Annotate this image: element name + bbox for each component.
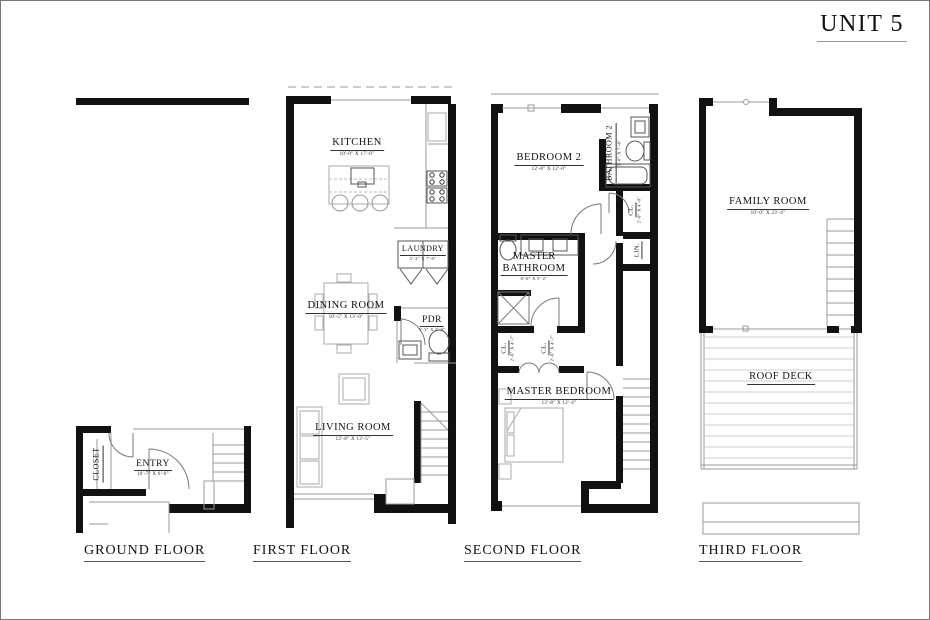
stool — [352, 195, 368, 211]
kitchen-dims: 10'-0" X 17'-0" — [330, 152, 384, 158]
third-thin-lines — [701, 102, 859, 534]
linen-closet-label: LIN. — [633, 241, 642, 259]
kitchen-label: KITCHEN 10'-0" X 17'-0" — [330, 137, 384, 157]
pdr-label: PDR 5'-3" X 5'-0" — [419, 315, 446, 333]
kitchen-name: KITCHEN — [330, 137, 384, 151]
bathroom2-name: BATHROOM 2 — [606, 123, 617, 183]
master-bathroom-name-line1: MASTER — [501, 251, 568, 263]
closet-right-label: CL. 2'-0" X 4'-7" — [540, 335, 555, 362]
living-room-name: LIVING ROOM — [313, 422, 393, 436]
family-room-name: FAMILY ROOM — [727, 196, 809, 210]
pdr-dims: 5'-3" X 5'-0" — [419, 328, 446, 333]
living-room-label: LIVING ROOM 12'-8" X 13'-5" — [313, 422, 393, 442]
family-room-dims: 10'-0" X 23'-4" — [727, 211, 809, 217]
bathroom2-dims: 5'-0" X 7'-8" — [617, 123, 622, 183]
master-bathroom-dims: 8'-0" X 9'-2" — [501, 277, 568, 282]
closet-left-label: CL. 2'-0" X 4'-7" — [500, 335, 515, 362]
closet-left-dims: 2'-0" X 4'-7" — [511, 335, 516, 362]
floor-plan-sheet: UNIT 5 CLOSET ENTRY 10'-7" X 6'-0" KITCH… — [0, 0, 930, 620]
entry-dims: 10'-7" X 6'-0" — [134, 472, 172, 478]
closet-label: CLOSET — [93, 445, 104, 482]
pdr-name: PDR — [420, 315, 444, 327]
family-room-label: FAMILY ROOM 10'-0" X 23'-4" — [727, 196, 809, 216]
bedroom2-name: BEDROOM 2 — [515, 152, 584, 166]
living-room-dims: 12'-8" X 13'-5" — [313, 437, 393, 443]
pdr-toilet — [429, 330, 449, 354]
third-floor-geometry — [699, 98, 862, 534]
deck-boards — [705, 337, 853, 458]
laundry-dims: 5'-2" X 7'-0" — [400, 257, 446, 262]
first-floor-label: FIRST FLOOR — [253, 543, 351, 562]
bathroom2-toilet — [626, 141, 644, 161]
dining-room-label: DINING ROOM 10'-5" X 13'-0" — [306, 300, 387, 320]
ground-floor-label: GROUND FLOOR — [84, 543, 205, 562]
plan-geometry — [1, 1, 930, 620]
master-bedroom-name: MASTER BEDROOM — [505, 386, 614, 400]
bathroom2-label: BATHROOM 2 5'-0" X 7'-8" — [606, 123, 623, 183]
roof-deck-label: ROOF DECK — [747, 371, 815, 385]
hall-closet-label: CL. 2'-0" X 4'-0" — [627, 197, 642, 224]
closet-left-name: CL. — [500, 340, 509, 355]
master-bathroom-label: MASTER BATHROOM 8'-0" X 9'-2" — [501, 251, 568, 282]
closet-name: CLOSET — [93, 445, 104, 482]
bedroom2-dims: 12'-8" X 12'-0" — [515, 167, 584, 173]
master-bedroom-dims: 12'-8" X 12'-4" — [505, 401, 614, 407]
third-floor-label: THIRD FLOOR — [699, 543, 802, 562]
second-floor-label: SECOND FLOOR — [464, 543, 581, 562]
linen-closet-name: LIN. — [633, 241, 642, 259]
laundry-name: LAUNDRY — [400, 245, 446, 256]
laundry-label: LAUNDRY 5'-2" X 7'-0" — [400, 245, 446, 262]
island-counter-dashed — [329, 179, 389, 192]
entry-name: ENTRY — [134, 459, 172, 471]
master-bedroom-label: MASTER BEDROOM 12'-8" X 12'-4" — [505, 386, 614, 406]
entry-label: ENTRY 10'-7" X 6'-0" — [134, 459, 172, 478]
dining-room-name: DINING ROOM — [306, 300, 387, 314]
closet-right-dims: 2'-0" X 4'-7" — [551, 335, 556, 362]
dining-room-dims: 10'-5" X 13'-0" — [306, 315, 387, 321]
window-marker — [744, 100, 749, 105]
stool — [372, 195, 388, 211]
hall-closet-name: CL. — [627, 202, 636, 217]
stool — [332, 195, 348, 211]
closet-right-name: CL. — [540, 340, 549, 355]
roof-deck-name: ROOF DECK — [747, 371, 815, 385]
range-burners — [430, 173, 444, 201]
master-bathroom-name-line2: BATHROOM — [501, 263, 568, 277]
bedroom2-label: BEDROOM 2 12'-8" X 12'-0" — [515, 152, 584, 172]
hall-closet-dims: 2'-0" X 4'-0" — [638, 197, 643, 224]
sheet-title: UNIT 5 — [817, 11, 907, 42]
shower — [498, 292, 529, 324]
